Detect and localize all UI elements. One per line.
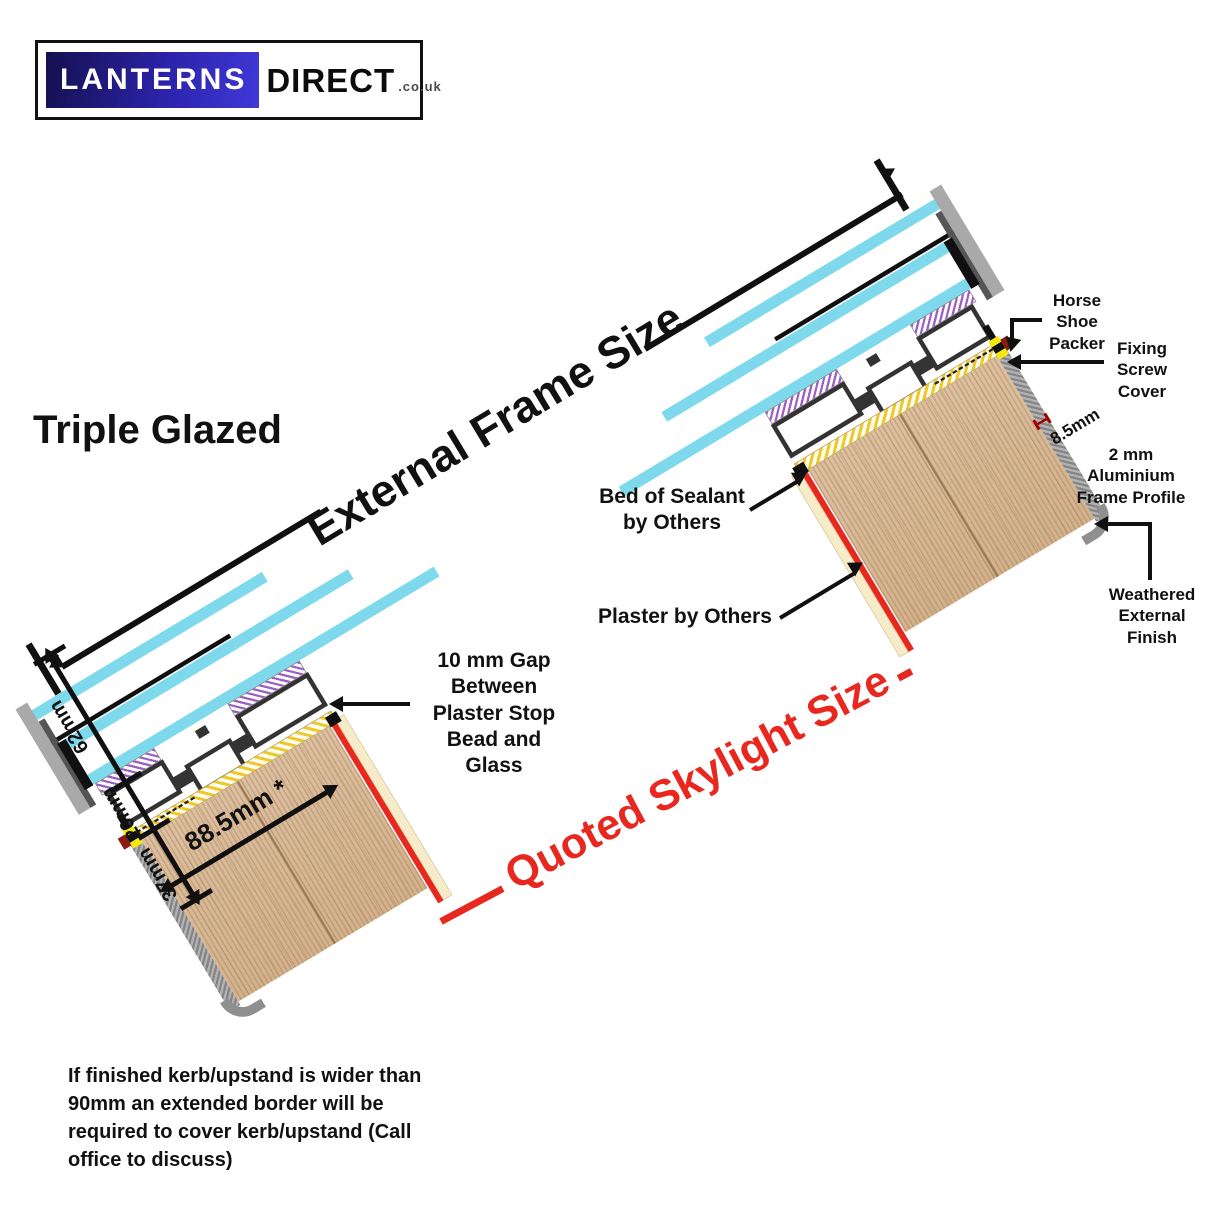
page-title: Triple Glazed [33,408,282,453]
aluminium-profile-label: 2 mm Aluminium Frame Profile [1064,444,1198,508]
plaster-gap-arrow [342,702,410,706]
weathered-finish-arrowhead [1094,516,1108,532]
red-dimension-segment [439,886,504,925]
horse-shoe-packer-label: Horse Shoe Packer [1042,290,1112,354]
red-dimension-segment [896,668,913,681]
plaster-by-others-label: Plaster by Others [598,604,772,630]
profile-web [866,353,881,367]
kerb-width-footnote: If finished kerb/upstand is wider than 9… [68,1062,460,1174]
horse-shoe-packer-arrow [1010,318,1042,322]
weathered-finish-arrow [1108,522,1152,526]
logo-tld-text: .co.uk [398,79,442,94]
fixing-screw-cover-arrowhead [1007,354,1021,370]
horse-shoe-packer-arrowhead [1003,336,1022,353]
plaster-gap-label: 10 mm Gap Between Plaster Stop Bead and … [420,648,568,779]
fixing-screw-cover-label: Fixing Screw Cover [1106,338,1178,402]
lanterns-direct-logo: LANTERNS DIRECT .co.uk [35,40,423,120]
skylight-cross-section-diagram: LANTERNS DIRECT .co.uk Triple Glazed [0,0,1214,1214]
bed-of-sealant-label: Bed of Sealant by Others [596,484,748,537]
plaster-gap-arrowhead [329,696,343,712]
logo-direct-text: DIRECT [266,64,395,97]
fixing-screw-cover-arrow [1020,360,1104,364]
logo-lanterns-text: LANTERNS [46,52,259,108]
weathered-finish-arrow [1148,522,1152,580]
weathered-finish-label: Weathered External Finish [1102,584,1202,648]
profile-web [195,725,210,739]
